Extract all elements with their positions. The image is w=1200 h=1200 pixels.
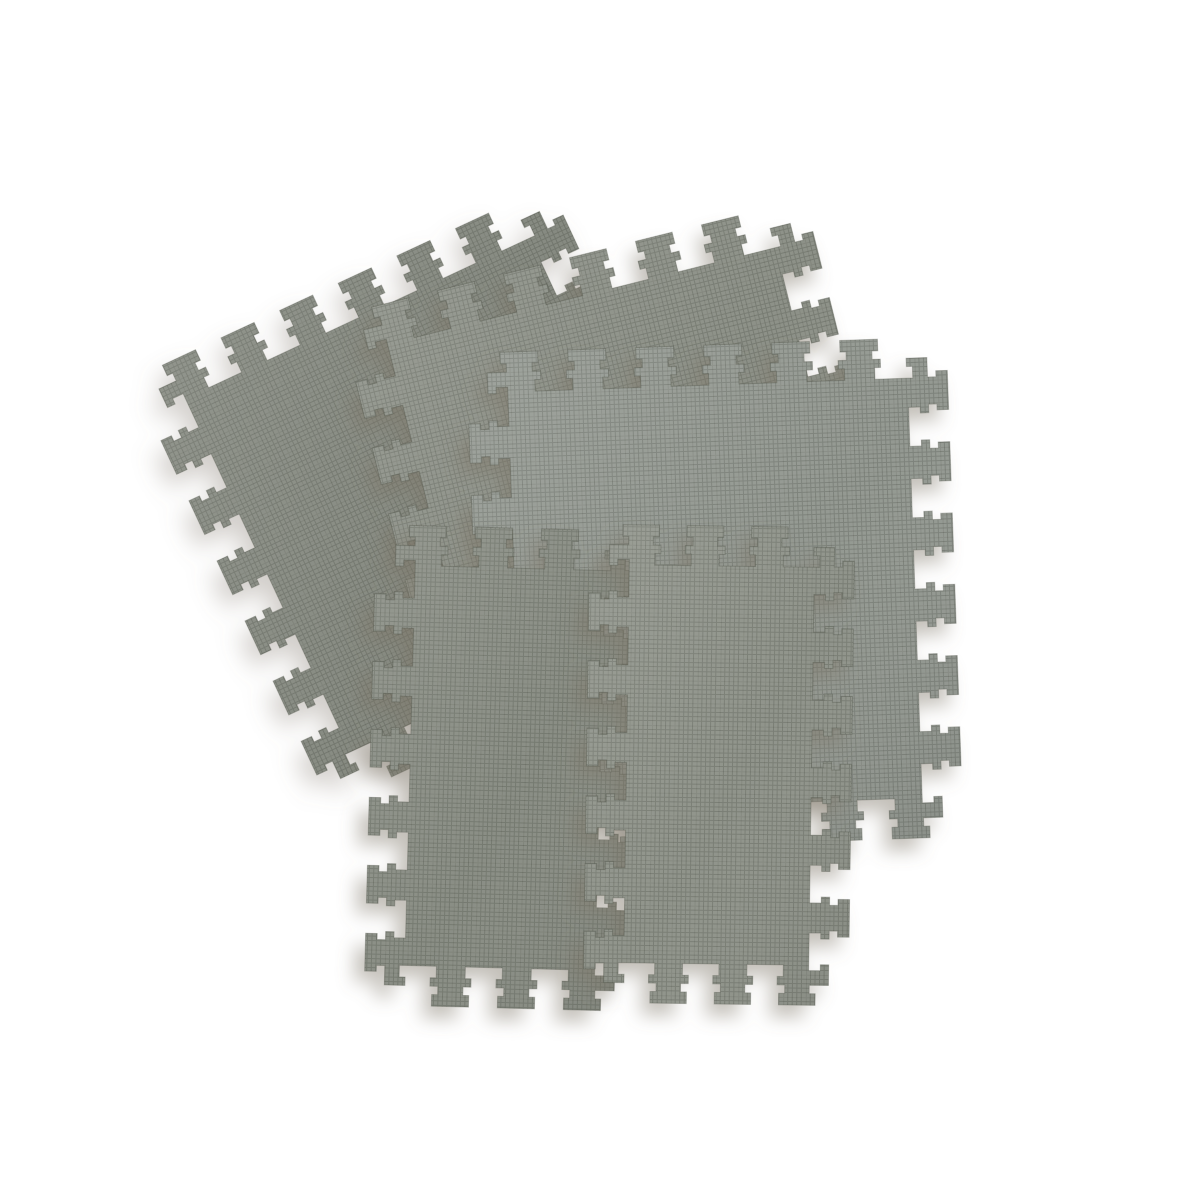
foam-mats-illustration bbox=[0, 0, 1200, 1200]
product-photo-interlocking-foam-mats bbox=[0, 0, 1200, 1200]
